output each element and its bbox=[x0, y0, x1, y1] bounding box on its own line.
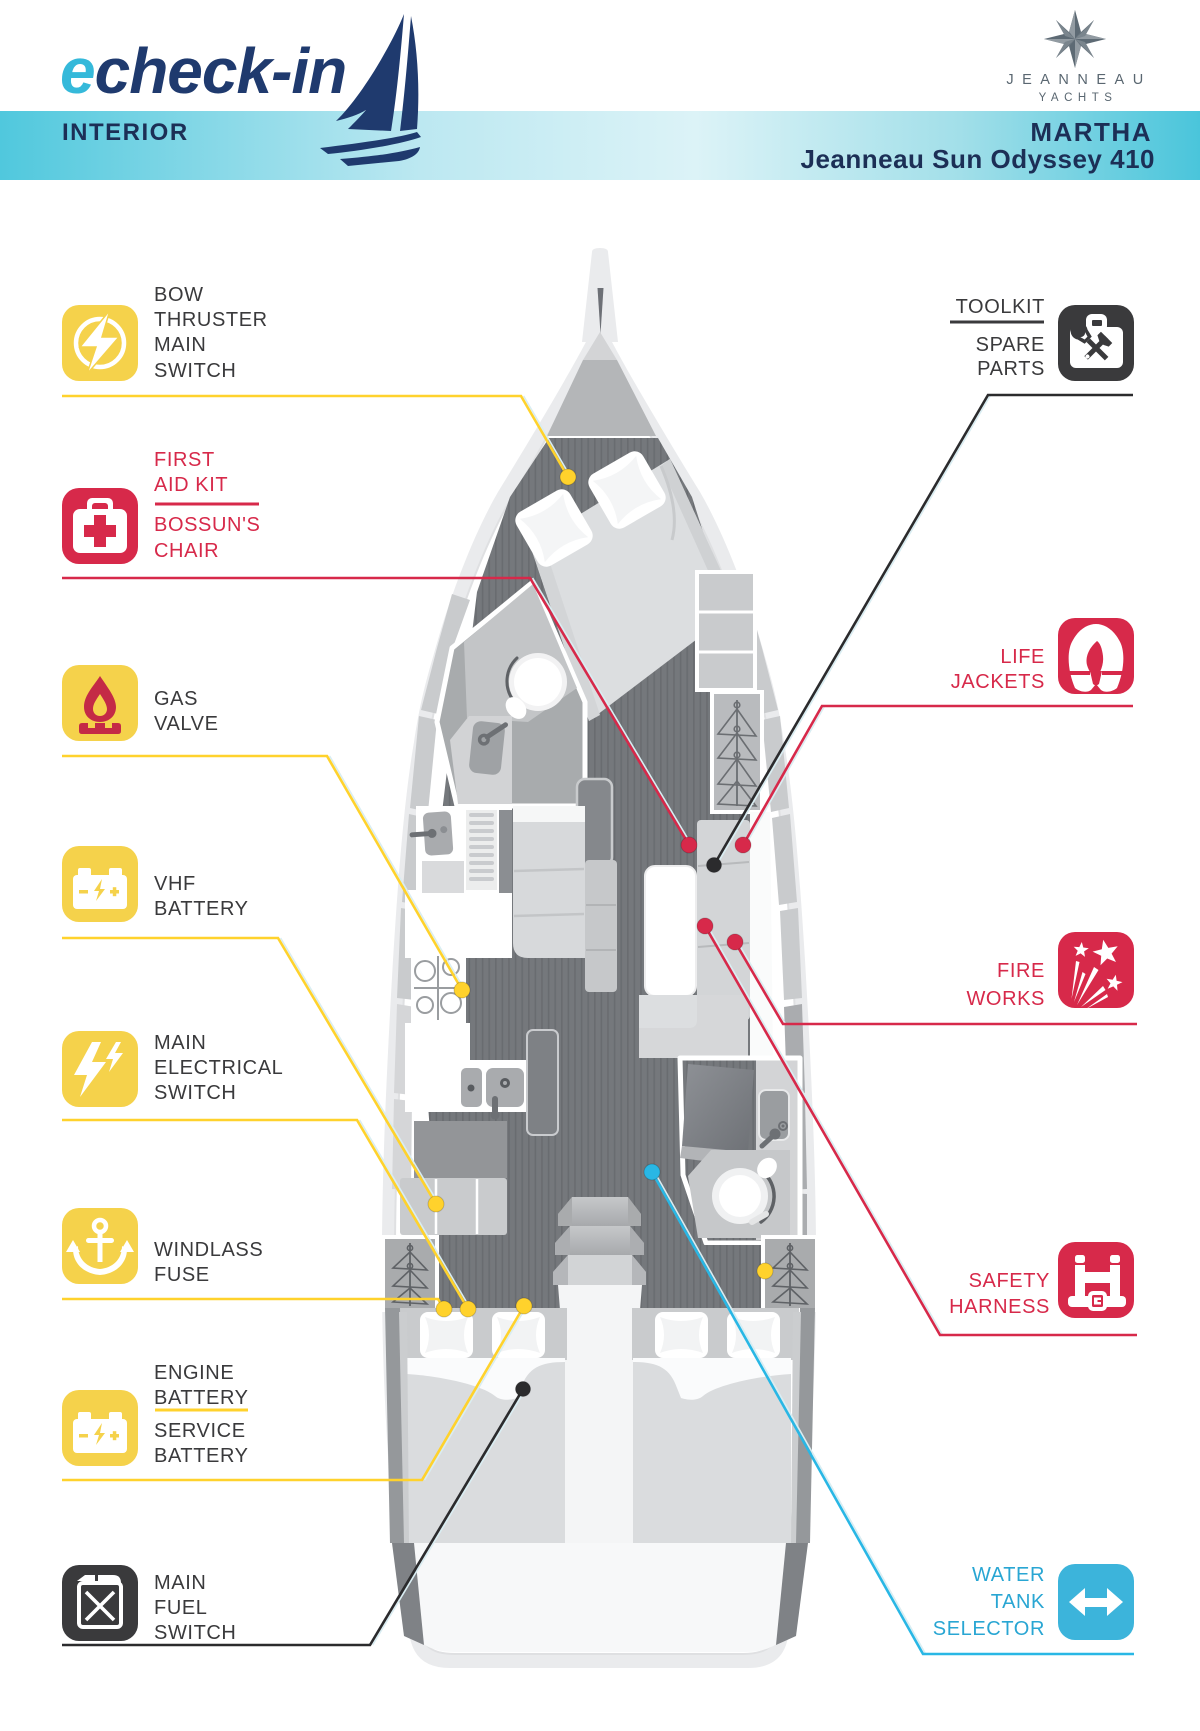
svg-text:Jeanneau Sun Odyssey 410: Jeanneau Sun Odyssey 410 bbox=[800, 144, 1155, 174]
svg-text:VHF: VHF bbox=[154, 873, 196, 895]
svg-text:BATTERY: BATTERY bbox=[154, 898, 249, 920]
svg-text:MAIN: MAIN bbox=[154, 1032, 206, 1054]
svg-text:FUSE: FUSE bbox=[154, 1264, 210, 1286]
svg-text:JEANNEAU: JEANNEAU bbox=[1006, 72, 1151, 88]
svg-text:ELECTRICAL: ELECTRICAL bbox=[154, 1057, 283, 1079]
svg-text:AID KIT: AID KIT bbox=[154, 474, 228, 496]
svg-text:WINDLASS: WINDLASS bbox=[154, 1239, 263, 1261]
svg-text:JACKETS: JACKETS bbox=[951, 671, 1045, 693]
svg-text:BOW: BOW bbox=[154, 284, 204, 306]
svg-text:GAS: GAS bbox=[154, 688, 198, 710]
svg-text:SWITCH: SWITCH bbox=[154, 360, 236, 382]
svg-text:SWITCH: SWITCH bbox=[154, 1082, 236, 1104]
svg-text:BATTERY: BATTERY bbox=[154, 1387, 249, 1409]
svg-text:INTERIOR: INTERIOR bbox=[62, 119, 189, 146]
svg-text:SELECTOR: SELECTOR bbox=[933, 1618, 1045, 1640]
svg-text:TOOLKIT: TOOLKIT bbox=[956, 296, 1045, 318]
svg-text:CHAIR: CHAIR bbox=[154, 540, 219, 562]
svg-text:YACHTS: YACHTS bbox=[1039, 92, 1118, 104]
svg-text:LIFE: LIFE bbox=[1000, 646, 1045, 668]
svg-text:PARTS: PARTS bbox=[977, 358, 1045, 380]
svg-text:SWITCH: SWITCH bbox=[154, 1622, 236, 1644]
svg-text:MAIN: MAIN bbox=[154, 334, 206, 356]
svg-text:echeck-in: echeck-in bbox=[60, 35, 346, 107]
svg-text:FUEL: FUEL bbox=[154, 1597, 208, 1619]
svg-text:SAFETY: SAFETY bbox=[969, 1270, 1050, 1292]
svg-text:ENGINE: ENGINE bbox=[154, 1362, 234, 1384]
svg-text:WORKS: WORKS bbox=[966, 988, 1045, 1010]
svg-text:BOSSUN'S: BOSSUN'S bbox=[154, 514, 260, 536]
svg-text:WATER: WATER bbox=[972, 1564, 1045, 1586]
svg-text:VALVE: VALVE bbox=[154, 713, 219, 735]
svg-text:BATTERY: BATTERY bbox=[154, 1445, 249, 1467]
svg-text:FIRST: FIRST bbox=[154, 449, 215, 471]
svg-text:FIRE: FIRE bbox=[997, 960, 1045, 982]
svg-text:THRUSTER: THRUSTER bbox=[154, 309, 268, 331]
svg-text:HARNESS: HARNESS bbox=[949, 1296, 1050, 1318]
svg-text:SPARE: SPARE bbox=[976, 334, 1045, 356]
svg-text:MARTHA: MARTHA bbox=[1030, 117, 1152, 147]
svg-text:TANK: TANK bbox=[991, 1591, 1045, 1613]
svg-text:MAIN: MAIN bbox=[154, 1572, 206, 1594]
svg-text:SERVICE: SERVICE bbox=[154, 1420, 246, 1442]
